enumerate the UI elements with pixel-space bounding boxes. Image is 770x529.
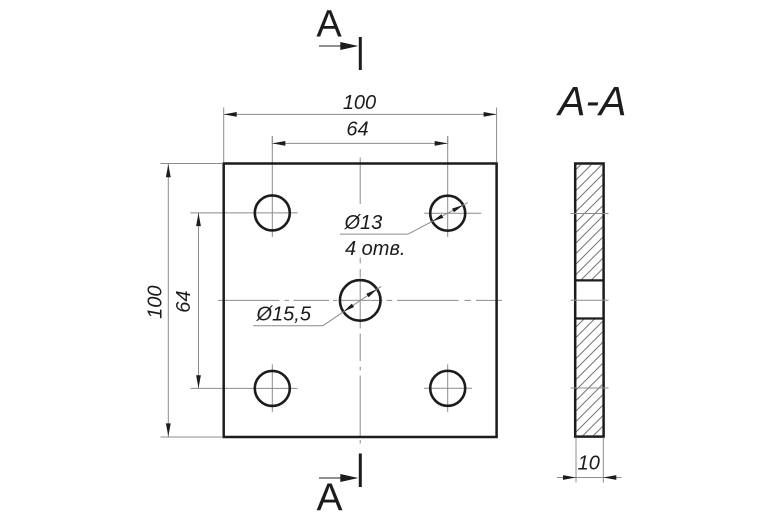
svg-text:A: A <box>316 4 342 46</box>
svg-text:10: 10 <box>578 453 600 475</box>
svg-text:Ø15,5: Ø15,5 <box>256 304 312 326</box>
svg-text:100: 100 <box>145 286 167 319</box>
svg-text:64: 64 <box>346 119 368 141</box>
svg-text:A: A <box>316 477 342 520</box>
svg-text:A-A: A-A <box>555 78 626 124</box>
svg-text:4 отв.: 4 отв. <box>345 238 405 260</box>
svg-text:64: 64 <box>173 290 195 312</box>
svg-text:Ø13: Ø13 <box>344 212 383 234</box>
svg-text:100: 100 <box>343 92 376 114</box>
